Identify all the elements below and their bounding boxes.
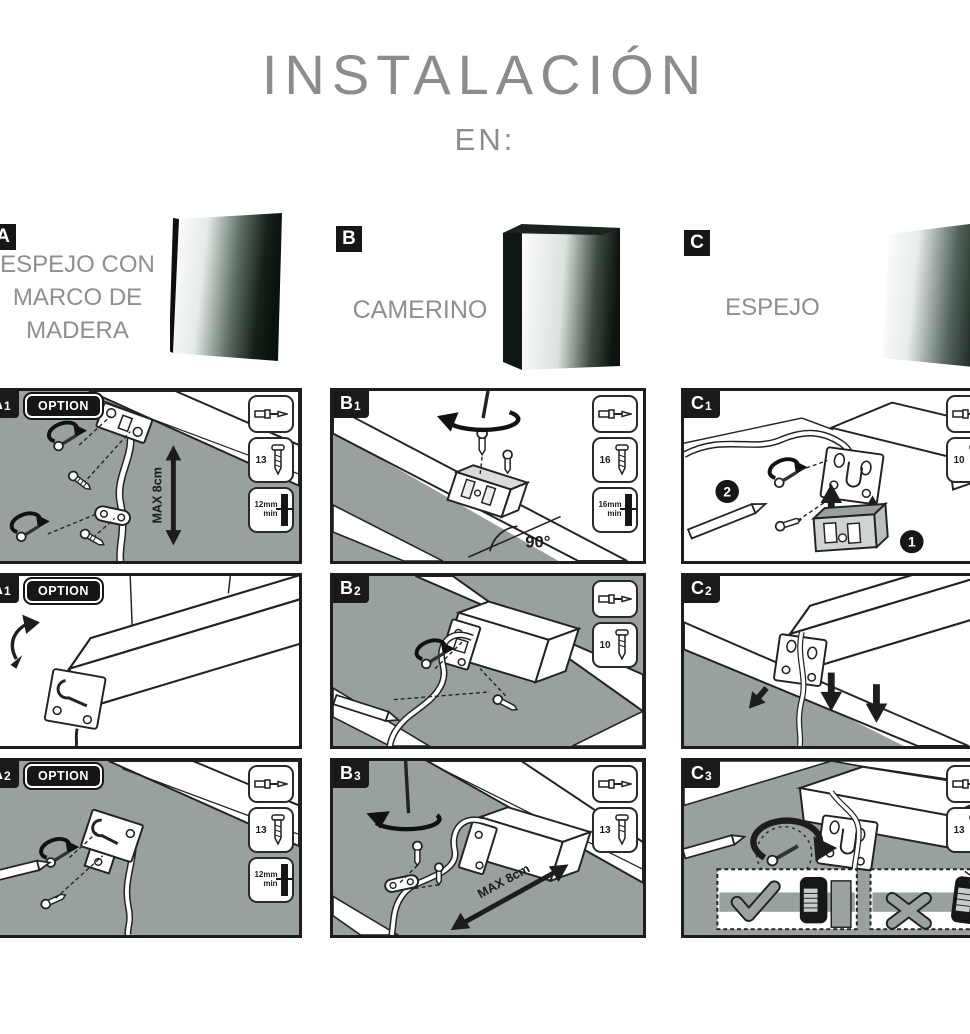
panel-c1-label: C1 [684, 391, 720, 418]
screw-size-icon: 10 [592, 622, 638, 668]
product-b-label: CAMERINO [330, 293, 510, 328]
product-b-badge: B [334, 224, 364, 254]
option-badge: OPTION [25, 764, 102, 788]
correct-anchor-inset [717, 869, 856, 929]
incorrect-anchor-inset [871, 869, 970, 929]
panel-b1: 90° B1 16 16mm min [330, 388, 646, 564]
panel-c2-label: C2 [684, 576, 720, 603]
screw-size-icon: 13 [248, 807, 294, 853]
screw-size-icon: 10 [946, 437, 970, 483]
option-badge: OPTION [25, 579, 102, 603]
panel-b1-label: B1 [333, 391, 369, 418]
panel-a1-label: A1 [0, 391, 19, 418]
panel-c3: C3 13 [681, 758, 970, 938]
step-1-badge: 1 [900, 530, 924, 553]
panel-c3-diagram [684, 761, 970, 935]
screwdriver-bit-icon [946, 395, 970, 433]
panel-c1-diagram: 1 2 [684, 391, 970, 561]
mirror-image [882, 219, 970, 373]
panel-a2: A2 OPTION 13 12mm min [0, 758, 302, 938]
screw-size-icon: 13 [248, 437, 294, 483]
screwdriver-bit-icon [248, 765, 294, 803]
panel-c3-label: C3 [684, 761, 720, 788]
wall-thickness-icon: 16mm min [592, 487, 638, 533]
screwdriver-bit-icon [946, 765, 970, 803]
panel-b3-label: B3 [333, 761, 369, 788]
installation-sheet: INSTALACIÓN EN: A ESPEJO CON MARCO DE MA… [0, 0, 970, 1034]
panel-c1: 1 2 C1 10 [681, 388, 970, 564]
cabinet-image [503, 221, 623, 372]
panel-b2: B2 10 [330, 573, 646, 749]
screw-icon [413, 842, 422, 866]
product-c-badge: C [682, 228, 712, 258]
panel-c2: C2 [681, 573, 970, 749]
anchor-block [813, 504, 888, 551]
svg-text:2: 2 [723, 484, 731, 499]
screwdriver-bit-icon [592, 765, 638, 803]
page-subtitle: EN: [0, 122, 970, 158]
screw-size-icon: 13 [946, 807, 970, 853]
hook-bracket [44, 669, 105, 729]
panel-b3: MAX 8cm B3 13 [330, 758, 646, 938]
cable [76, 729, 77, 746]
screwdriver-bit-icon [592, 580, 638, 618]
page-title: INSTALACIÓN [0, 42, 970, 107]
svg-text:1: 1 [908, 535, 916, 550]
panel-a1: MAX 8cm A1 OPTION 13 12mm min [0, 388, 302, 564]
screwdriver-bit-icon [592, 395, 638, 433]
panel-b2-label: B2 [333, 576, 369, 603]
product-c-label: ESPEJO [690, 291, 855, 324]
screw-size-icon: 16 [592, 437, 638, 483]
mirror-framed-image [170, 212, 284, 366]
option-badge: OPTION [25, 394, 102, 418]
panel-a2-label: A2 [0, 761, 19, 788]
step-2-badge: 2 [715, 480, 739, 503]
panel-c2-diagram [684, 576, 970, 746]
screw-icon [503, 450, 512, 473]
panel-a1b-label: A1 [0, 576, 19, 603]
screwdriver-bit-icon [248, 395, 294, 433]
wall-thickness-icon: 12mm min [248, 857, 294, 903]
svg-text:90°: 90° [525, 533, 550, 552]
wall-thickness-icon: 12mm min [248, 487, 294, 533]
panel-a1-option2: A1 OPTION [0, 573, 302, 749]
svg-text:MAX 8cm: MAX 8cm [151, 467, 165, 523]
screw-size-icon: 13 [592, 807, 638, 853]
